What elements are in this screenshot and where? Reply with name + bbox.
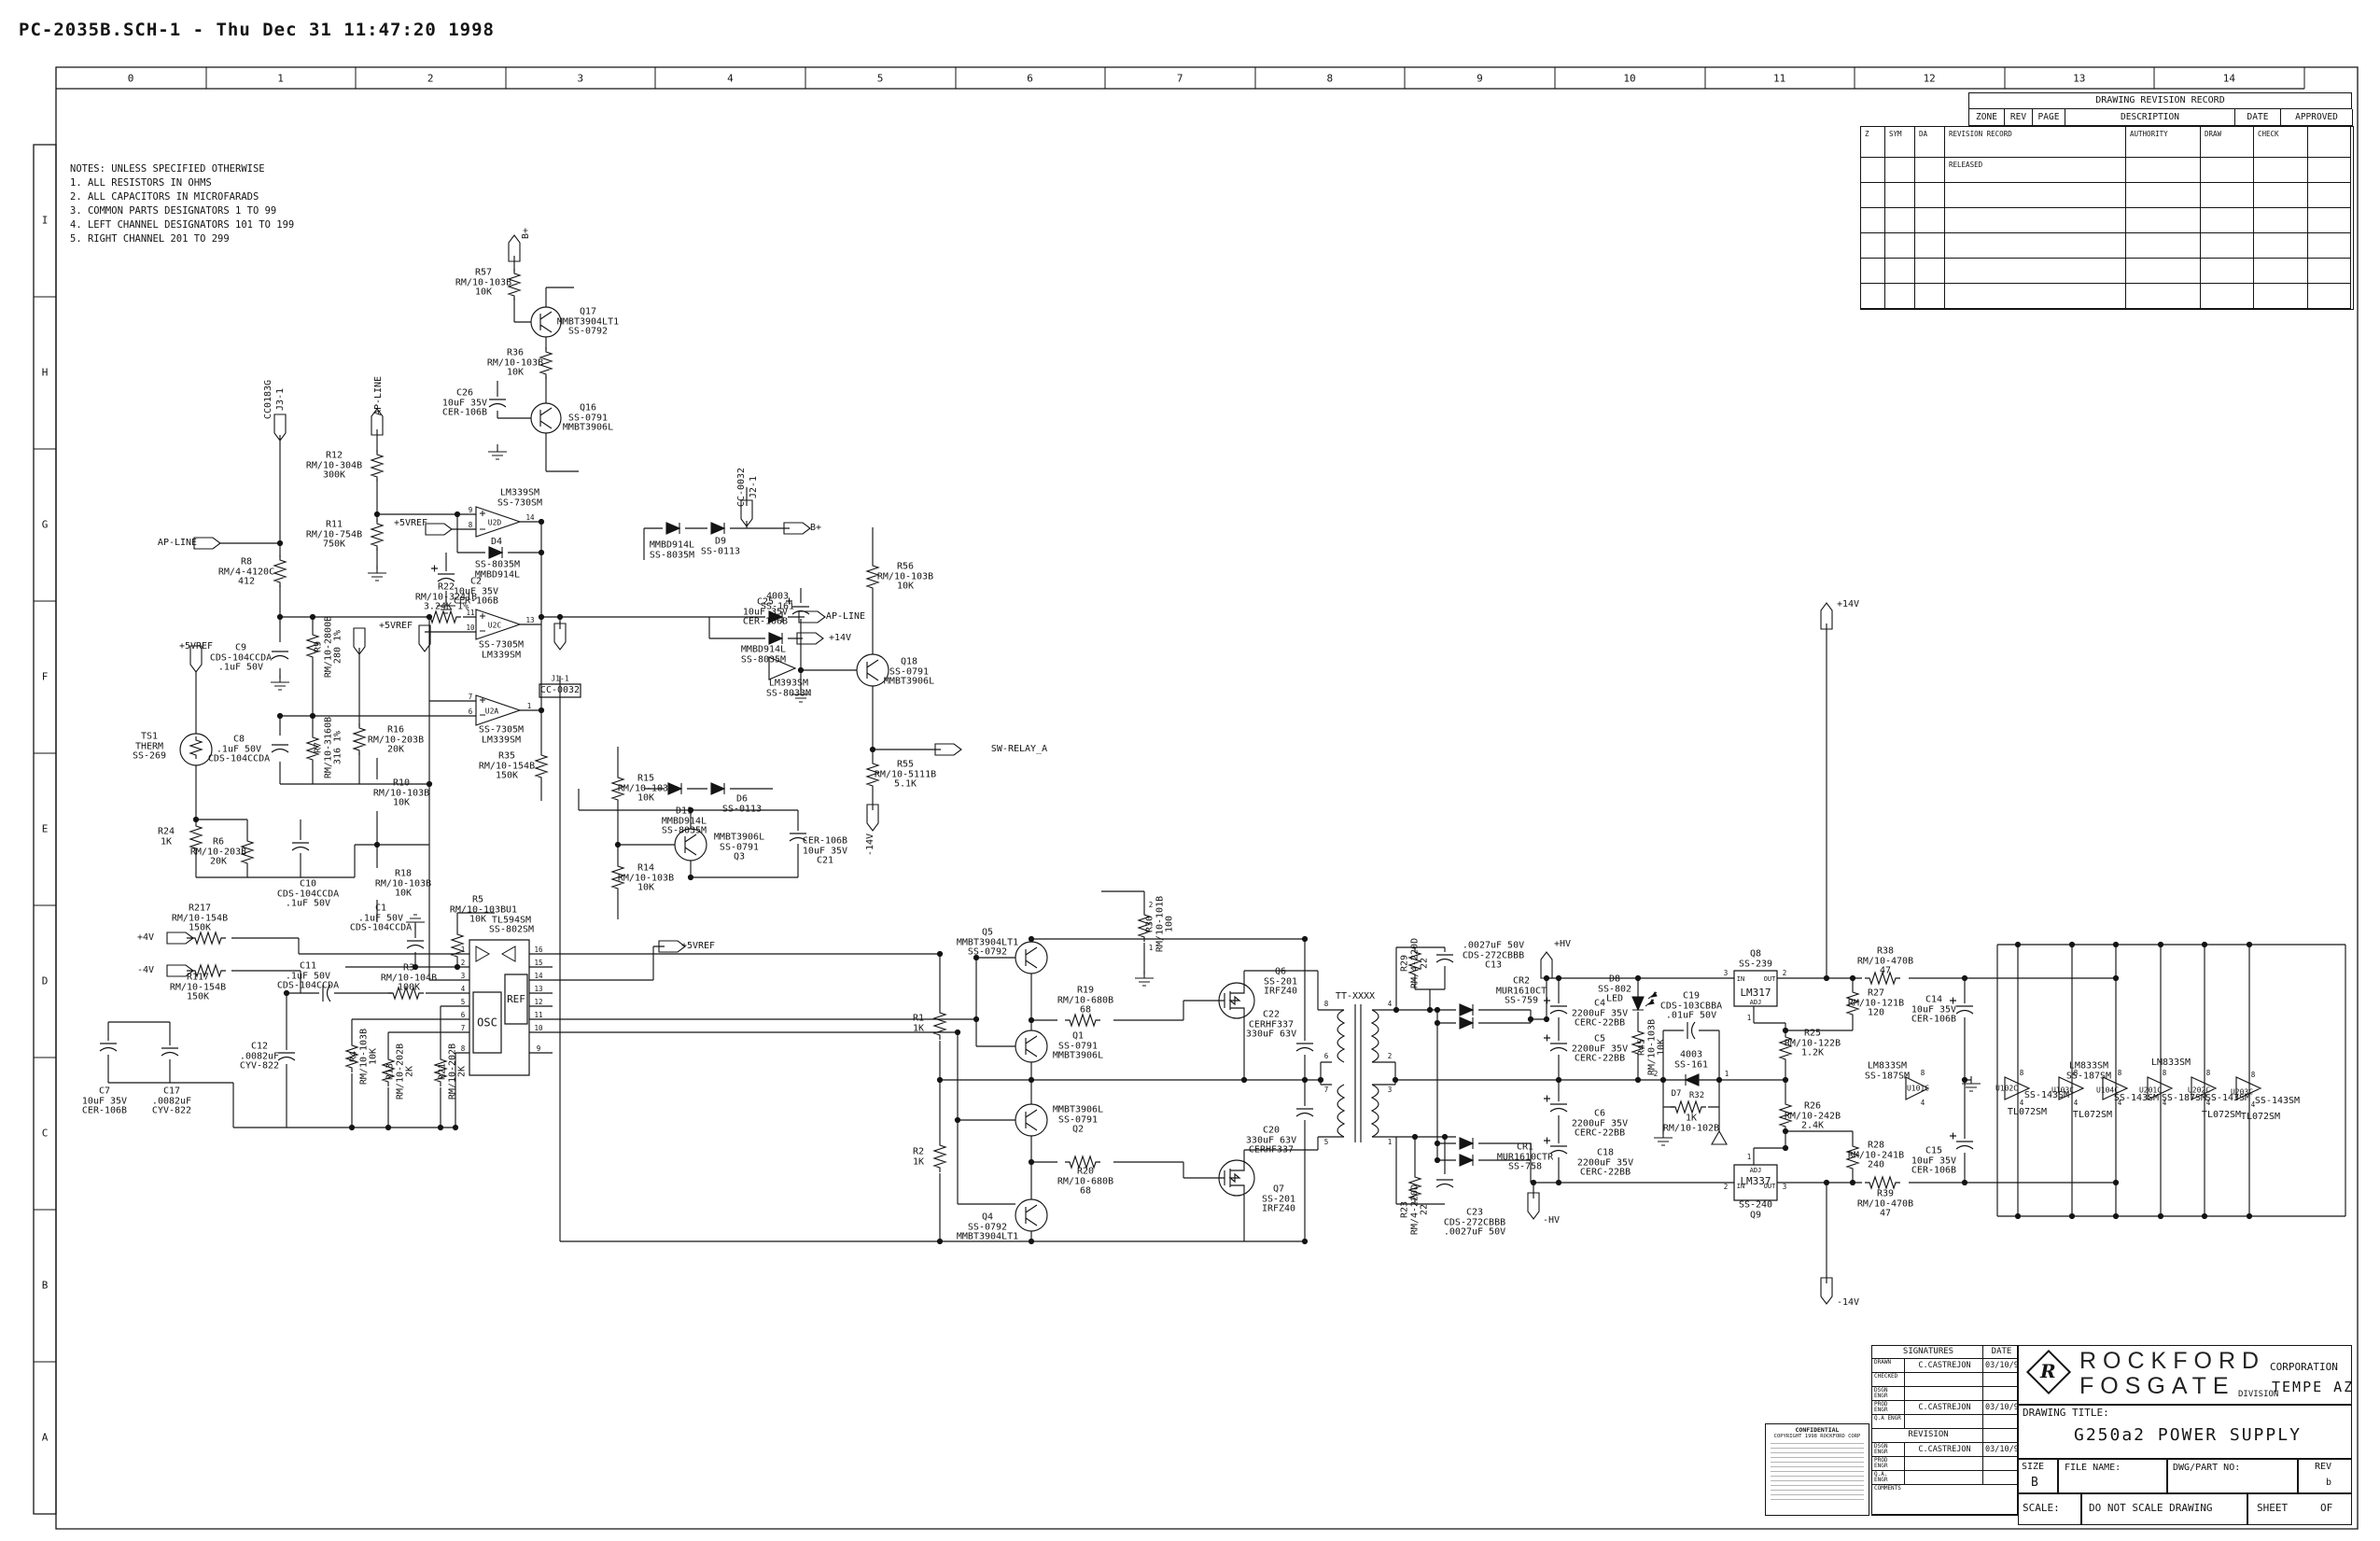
pin-number: 13 bbox=[534, 986, 542, 993]
border-column-0: 0 bbox=[128, 74, 134, 84]
confidential-box: CONFIDENTIAL COPYRIGHT 1998 ROCKFORD COR… bbox=[1765, 1423, 1869, 1516]
pin-number: 4 bbox=[2074, 1100, 2079, 1107]
schematic-label: -4V bbox=[137, 966, 154, 976]
rev-inner-col: DRAW bbox=[2201, 127, 2254, 158]
rev-cell bbox=[1945, 208, 2126, 233]
schematic-label: R28 RM/10-241B 240 bbox=[1848, 1141, 1904, 1170]
schematic-label: OUT bbox=[1764, 975, 1776, 983]
schematic-label: Q16 SS-0791 MMBT3906L bbox=[563, 403, 613, 433]
schematic-sheet: { "header": { "title": "PC-2035B.SCH-1 -… bbox=[0, 0, 2380, 1541]
size-value: B bbox=[2031, 1477, 2038, 1490]
sig-cell: DATE bbox=[1983, 1346, 2019, 1359]
sig-cell bbox=[1983, 1457, 2019, 1471]
schematic-label: R36 RM/10-103B 10K bbox=[487, 348, 543, 378]
schematic-label: R45 RM/10-103B 10K bbox=[1637, 1019, 1667, 1075]
pin-number: 8 bbox=[2163, 1070, 2167, 1077]
rev-cell bbox=[1945, 233, 2126, 259]
schematic-label: C22 CERHF337 330uF 63V bbox=[1246, 1010, 1296, 1040]
sig-cell: Q.A. ENGR bbox=[1872, 1471, 1905, 1485]
border-row-A: A bbox=[42, 1433, 49, 1443]
schematic-label: SS-143SM bbox=[2255, 1097, 2300, 1107]
sig-cell: SIGNATURES bbox=[1872, 1346, 1983, 1359]
pin-number: 9 bbox=[537, 1045, 541, 1053]
schematic-label: MMBT3906L SS-0791 Q3 bbox=[714, 833, 764, 862]
schematic-label: U2A bbox=[485, 707, 498, 716]
schematic-label: CER-106B 10uF 35V C21 bbox=[803, 836, 847, 866]
schematic-label: J3-1 bbox=[276, 388, 287, 411]
schematic-label: R12 RM/10-304B 300K bbox=[306, 451, 362, 481]
rev-cell bbox=[2254, 158, 2308, 183]
note-line: 4. LEFT CHANNEL DESIGNATORS 101 TO 199 bbox=[70, 220, 294, 231]
schematic-label: R2 1K bbox=[913, 1148, 924, 1168]
schematic-label: LM833SM bbox=[2151, 1058, 2191, 1069]
rev-inner-col: CHECK bbox=[2254, 127, 2308, 158]
pin-number: 8 bbox=[469, 522, 473, 529]
schematic-label: R4 RM/10-103B 10K bbox=[349, 1029, 379, 1085]
rev-value: b bbox=[2326, 1478, 2331, 1488]
confidential-legal-text bbox=[1771, 1443, 1864, 1501]
schematic-label: Q1 SS-0791 MMBT3906L bbox=[1053, 1031, 1103, 1061]
rev-cell bbox=[1885, 259, 1915, 284]
sig-cell: DSGN ENGR bbox=[1872, 1387, 1905, 1401]
schematic-label: C8 .1uF 50V CDS-104CCDA bbox=[208, 735, 270, 764]
schematic-label: D8 SS-802 LED bbox=[1598, 974, 1631, 1004]
pin-number: 13 bbox=[525, 617, 534, 624]
schematic-label: SW-RELAY_A bbox=[991, 745, 1047, 755]
pin-number: 6 bbox=[469, 708, 473, 716]
schematic-label: R3 RM/10-104B 100K bbox=[381, 963, 437, 993]
pin-number: 3 bbox=[461, 973, 466, 980]
schematic-label: MMBD914L SS-8035M bbox=[741, 646, 786, 665]
sig-cell: REVISION bbox=[1872, 1429, 1983, 1443]
schematic-label: 1K RM/10-102B bbox=[1663, 1114, 1719, 1134]
sig-cell: DSGN ENGR bbox=[1872, 1443, 1905, 1457]
rev-cell bbox=[1915, 233, 1945, 259]
rev-cell bbox=[2201, 259, 2254, 284]
pin-number: 11 bbox=[534, 1012, 542, 1019]
schematic-label: R7 RM/10-3160B 316 1% bbox=[314, 717, 343, 778]
pin-number: 8 bbox=[2074, 1070, 2079, 1077]
confidential-copyright: COPYRIGHT 1998 ROCKFORD CORP bbox=[1766, 1434, 1869, 1440]
schematic-label: C1 .1uF 50V CDS-104CCDA bbox=[350, 904, 412, 933]
schematic-label: C6 2200uF 35V CERC-22BB bbox=[1572, 1109, 1628, 1139]
schematic-label: R16 RM/10-203B 20K bbox=[368, 725, 424, 755]
schematic-label: R13 RM/10-202B 2K bbox=[385, 1044, 415, 1100]
rev-cell bbox=[2201, 183, 2254, 208]
pin-number: 1 bbox=[527, 703, 532, 710]
rev-cell bbox=[1861, 158, 1885, 183]
schematic-label: CC-0032 bbox=[737, 468, 748, 507]
border-column-11: 11 bbox=[1773, 74, 1785, 84]
rev-cell bbox=[2308, 284, 2351, 309]
sig-cell: PROD ENGR bbox=[1872, 1401, 1905, 1415]
sig-cell: 03/10/98 bbox=[1983, 1359, 2019, 1373]
schematic-label: C5 2200uF 35V CERC-22BB bbox=[1572, 1034, 1628, 1064]
schematic-label: U203C bbox=[2231, 1088, 2253, 1097]
schematic-label: R24 1K bbox=[158, 828, 175, 848]
sig-cell bbox=[1983, 1415, 2019, 1429]
schematic-label: R29 RM/4-220D 22 bbox=[1400, 938, 1430, 988]
schematic-label: R10 RM/10-103B 10K bbox=[373, 778, 429, 808]
schematic-label: -14V bbox=[1837, 1298, 1859, 1309]
schematic-label: TT-XXXX bbox=[1336, 992, 1375, 1002]
rev-col-APPROVED: APPROVED bbox=[2280, 109, 2353, 126]
sig-cell bbox=[1905, 1415, 1983, 1429]
sig-cell: C.CASTREJON bbox=[1905, 1443, 1983, 1457]
schematic-label: SS-187SM bbox=[2162, 1094, 2206, 1104]
schematic-label: Q5 MMBT3904LT1 SS-0792 bbox=[957, 928, 1018, 958]
schematic-label: R6 RM/10-203B 20K bbox=[190, 837, 246, 867]
schematic-label: LM393SM SS-8033M bbox=[766, 679, 811, 699]
pin-number: 8 bbox=[461, 1045, 466, 1053]
size-label: SIZE bbox=[2022, 1462, 2044, 1472]
schematic-label: R14 RM/10-103B 10K bbox=[618, 863, 674, 893]
schematic-label: U1 TL594SM SS-802SM bbox=[489, 905, 534, 935]
rev-cell bbox=[2254, 284, 2308, 309]
schematic-label: U2D bbox=[488, 519, 501, 527]
pin-number: 1 bbox=[1747, 1015, 1752, 1022]
sig-cell: C.CASTREJON bbox=[1905, 1401, 1983, 1415]
sig-cell: CHECKED bbox=[1872, 1373, 1905, 1387]
pin-number: 10 bbox=[466, 624, 474, 632]
schematic-label: +5VREF bbox=[379, 622, 413, 632]
border-row-H: H bbox=[42, 368, 49, 378]
schematic-label: TL072SM bbox=[2241, 1113, 2280, 1123]
schematic-label: C23 CDS-272CBBB .0027uF 50V bbox=[1444, 1208, 1505, 1238]
schematic-label: .0027uF 50V CDS-272CBBB C13 bbox=[1463, 941, 1524, 971]
rev-cell bbox=[1885, 284, 1915, 309]
file-name-label: FILE NAME: bbox=[2065, 1463, 2121, 1473]
rev-cell bbox=[2126, 208, 2201, 233]
rev-cell bbox=[1915, 259, 1945, 284]
rev-cell bbox=[1915, 158, 1945, 183]
pin-number: 9 bbox=[469, 507, 473, 514]
rev-cell bbox=[2126, 233, 2201, 259]
pin-number: 2 bbox=[1149, 902, 1154, 909]
schematic-label: C10 CDS-104CCDA .1uF 50V bbox=[277, 879, 339, 909]
rev-inner-col bbox=[2308, 127, 2351, 158]
rev-cell bbox=[2201, 284, 2254, 309]
schematic-label: R20 RM/10-680B 68 bbox=[1057, 1167, 1113, 1197]
rev-inner-col: DA bbox=[1915, 127, 1945, 158]
sig-cell: 03/10/98 bbox=[1983, 1443, 2019, 1457]
schematic-label: U101C bbox=[1907, 1085, 1929, 1093]
schematic-label: AP-LINE bbox=[158, 539, 197, 549]
rev-cell bbox=[1861, 284, 1885, 309]
sheet-label: SHEET bbox=[2257, 1503, 2288, 1514]
schematic-label: +5VREF bbox=[394, 519, 427, 529]
schematic-label: R8 RM/4-4120C 412 bbox=[218, 557, 274, 587]
rev-cell bbox=[1885, 183, 1915, 208]
drawing-title-label: DRAWING TITLE: bbox=[2023, 1408, 2109, 1419]
pin-number: 3 bbox=[1388, 1086, 1393, 1094]
rev-cell bbox=[2308, 259, 2351, 284]
schematic-label: CR1 MUR1610CTR SS-758 bbox=[1497, 1142, 1553, 1172]
rev-cell bbox=[1885, 233, 1915, 259]
schematic-label: LM833SM SS-187SM bbox=[1865, 1062, 1910, 1082]
schematic-label: SS-7305M LM339SM bbox=[479, 726, 524, 746]
revision-table-columns: ZONEREVPAGEDESCRIPTIONDATEAPPROVED bbox=[1968, 109, 2352, 126]
scale-label: SCALE: bbox=[2023, 1503, 2060, 1514]
pin-number: 1 bbox=[1149, 945, 1154, 952]
pin-number: 8 bbox=[2118, 1070, 2122, 1077]
border-column-6: 6 bbox=[1027, 74, 1033, 84]
rev-col-DESCRIPTION: DESCRIPTION bbox=[2065, 109, 2235, 126]
schematic-label: MMBD914L SS-8035M bbox=[650, 541, 694, 561]
pin-number: 7 bbox=[469, 693, 473, 701]
sig-cell bbox=[1983, 1387, 2019, 1401]
schematic-label: +14V bbox=[1837, 600, 1859, 610]
pin-number: 1 bbox=[461, 946, 466, 954]
pin-number: 15 bbox=[534, 960, 542, 967]
revision-table-grid: ZSYMDAREVISION RECORDAUTHORITYDRAWCHECKR… bbox=[1860, 126, 2354, 310]
border-column-3: 3 bbox=[577, 74, 583, 84]
rev-cell bbox=[2126, 259, 2201, 284]
border-column-9: 9 bbox=[1477, 74, 1483, 84]
scale-note: DO NOT SCALE DRAWING bbox=[2089, 1503, 2212, 1514]
schematic-label: C19 CDS-103CBBA .01uF 50V bbox=[1660, 991, 1722, 1021]
rev-col-DATE: DATE bbox=[2234, 109, 2281, 126]
pin-number: 4 bbox=[2163, 1100, 2167, 1107]
schematic-label: +5VREF bbox=[179, 642, 213, 652]
signatures-table: SIGNATURESDATEDRAWNC.CASTREJON03/10/98CH… bbox=[1871, 1345, 2018, 1516]
company-name-1: ROCKFORD bbox=[2079, 1349, 2265, 1373]
border-column-8: 8 bbox=[1326, 74, 1333, 84]
schematic-label: R19 RM/10-680B 68 bbox=[1057, 986, 1113, 1016]
confidential-title: CONFIDENTIAL bbox=[1766, 1426, 1869, 1434]
rev-cell bbox=[1915, 208, 1945, 233]
schematic-label: ADJ bbox=[1750, 999, 1762, 1006]
dwg-label: DWG/PART NO: bbox=[2173, 1463, 2240, 1473]
sig-cell bbox=[1905, 1373, 1983, 1387]
sig-cell: Q.A ENGR bbox=[1872, 1415, 1905, 1429]
schematic-label: IN bbox=[1737, 1183, 1744, 1190]
rev-cell bbox=[2308, 158, 2351, 183]
rev-cell bbox=[2254, 259, 2308, 284]
rev-cell bbox=[1885, 208, 1915, 233]
schematic-label: TL072SM bbox=[2073, 1111, 2112, 1121]
pin-number: 8 bbox=[2251, 1072, 2256, 1079]
border-column-7: 7 bbox=[1177, 74, 1183, 84]
schematic-label: CC0183G bbox=[264, 380, 274, 419]
pin-number: 7 bbox=[1324, 1086, 1329, 1094]
company-name-2: FOSGATE bbox=[2079, 1374, 2235, 1398]
border-row-G: G bbox=[42, 520, 49, 530]
schematic-label: R56 RM/10-103B 10K bbox=[877, 562, 933, 592]
schematic-label: C18 2200uF 35V CERC-22BB bbox=[1577, 1148, 1633, 1178]
rev-cell bbox=[1915, 284, 1945, 309]
pin-number: 4 bbox=[2251, 1101, 2256, 1109]
schematic-label: R9 RM/10-2800B 280 1% bbox=[314, 616, 343, 678]
schematic-label: B+ bbox=[522, 228, 532, 239]
pin-number: 4 bbox=[461, 986, 466, 993]
sig-cell: 03/10/98 bbox=[1983, 1401, 2019, 1415]
schematic-label: R55 RM/10-5111B 5.1K bbox=[875, 760, 936, 790]
sig-cell: COMMENTS bbox=[1872, 1485, 2019, 1515]
schematic-label: -HV bbox=[1543, 1216, 1560, 1226]
pin-number: 8 bbox=[2206, 1070, 2211, 1077]
schematic-label: R117 RM/10-154B 150K bbox=[170, 973, 226, 1002]
schematic-label: +4V bbox=[137, 933, 154, 944]
schematic-label: Q7 SS-201 IRFZ40 bbox=[1262, 1184, 1295, 1214]
border-column-14: 14 bbox=[2223, 74, 2235, 84]
pin-number: 5 bbox=[461, 999, 466, 1006]
rev-cell bbox=[2126, 158, 2201, 183]
schematic-label: R11 RM/10-754B 750K bbox=[306, 520, 362, 550]
rev-cell bbox=[2254, 208, 2308, 233]
drawing-revision-record: DRAWING REVISION RECORD ZONEREVPAGEDESCR… bbox=[1860, 92, 2352, 310]
sig-cell bbox=[1983, 1471, 2019, 1485]
pin-number: 16 bbox=[534, 946, 542, 954]
schematic-label: SS-240 Q9 bbox=[1739, 1201, 1772, 1221]
rev-cell bbox=[2254, 233, 2308, 259]
schematic-label: Q17 MMBT3904LT1 SS-0792 bbox=[557, 307, 619, 337]
border-column-5: 5 bbox=[877, 74, 884, 84]
rev-inner-col: AUTHORITY bbox=[2126, 127, 2201, 158]
schematic-label: TS1 THERM SS-269 bbox=[133, 732, 166, 762]
border-column-13: 13 bbox=[2073, 74, 2085, 84]
border-column-1: 1 bbox=[277, 74, 284, 84]
border-row-B: B bbox=[42, 1281, 49, 1291]
pin-number: 14 bbox=[525, 514, 534, 522]
border-column-2: 2 bbox=[427, 74, 434, 84]
schematic-label: C11 .1uF 50V CDS-104CCDA bbox=[277, 961, 339, 991]
schematic-label: MMBT3906L SS-0791 Q2 bbox=[1053, 1105, 1103, 1135]
rev-cell bbox=[1945, 183, 2126, 208]
pin-number: 7 bbox=[461, 1025, 466, 1032]
sig-cell bbox=[1983, 1373, 2019, 1387]
of-label: OF bbox=[2320, 1503, 2332, 1514]
schematic-label: R57 RM/10-103B 10K bbox=[455, 268, 511, 298]
pin-number: 5 bbox=[1324, 1139, 1329, 1146]
rev-cell bbox=[2126, 284, 2201, 309]
border-row-E: E bbox=[42, 824, 49, 834]
schematic-label: +HV bbox=[1554, 940, 1571, 950]
schematic-label: R18 RM/10-103B 10K bbox=[375, 869, 431, 899]
border-row-D: D bbox=[42, 976, 49, 987]
schematic-label: LM317 bbox=[1740, 988, 1771, 999]
schematic-label: R15 RM/10-103B 10K bbox=[618, 774, 674, 804]
schematic-label: B+ bbox=[810, 524, 821, 534]
rev-cell bbox=[1885, 158, 1915, 183]
pin-number: 3 bbox=[1783, 1184, 1787, 1191]
schematic-label: U201C bbox=[2139, 1086, 2162, 1095]
note-line: NOTES: UNLESS SPECIFIED OTHERWISE bbox=[70, 164, 265, 175]
pin-number: 6 bbox=[1324, 1053, 1329, 1060]
rev-col-PAGE: PAGE bbox=[2032, 109, 2065, 126]
rev-cell: RELEASED bbox=[1945, 158, 2126, 183]
rev-cell bbox=[1861, 183, 1885, 208]
schematic-label: C7 10uF 35V CER-106B bbox=[82, 1086, 127, 1116]
schematic-label: C26 10uF 35V CER-106B bbox=[442, 388, 487, 418]
schematic-label: AP-LINE bbox=[826, 612, 865, 623]
pin-number: 4 bbox=[1921, 1100, 1925, 1107]
rev-cell bbox=[1915, 183, 1945, 208]
schematic-label: C17 .0082uF CYV-822 bbox=[152, 1086, 191, 1116]
sig-cell bbox=[1983, 1429, 2019, 1443]
note-line: 3. COMMON PARTS DESIGNATORS 1 TO 99 bbox=[70, 206, 276, 217]
schematic-label: CR2 MUR1610CT SS-759 bbox=[1496, 976, 1547, 1006]
schematic-label: C12 .0082uF CYV-822 bbox=[240, 1042, 279, 1072]
schematic-label: Q4 SS-0792 MMBT3904LT1 bbox=[957, 1212, 1018, 1242]
revision-table-title: DRAWING REVISION RECORD bbox=[1968, 92, 2352, 109]
rev-cell bbox=[1861, 259, 1885, 284]
schematic-label: Q6 SS-201 IRFZ40 bbox=[1264, 967, 1297, 997]
rev-cell bbox=[2201, 208, 2254, 233]
rev-cell bbox=[2308, 233, 2351, 259]
rev-cell bbox=[1861, 208, 1885, 233]
schematic-label: J1-1 bbox=[551, 675, 568, 683]
border-row-F: F bbox=[42, 672, 49, 682]
sig-cell bbox=[1905, 1457, 1983, 1471]
rev-col-REV: REV bbox=[2004, 109, 2033, 126]
schematic-label: R38 RM/10-470B 47 bbox=[1857, 946, 1913, 976]
schematic-label: SS-7305M LM339SM bbox=[479, 641, 524, 661]
schematic-label: R23 RM/4-220D 22 bbox=[1400, 1184, 1430, 1235]
pin-number: 4 bbox=[2020, 1100, 2024, 1107]
drawing-title: G250a2 POWER SUPPLY bbox=[2074, 1426, 2302, 1445]
schematic-label: R39 RM/10-470B 47 bbox=[1857, 1189, 1913, 1219]
schematic-label: D4 bbox=[491, 538, 502, 548]
schematic-label: CC-0032 bbox=[540, 686, 580, 696]
pin-number: 2 bbox=[1783, 970, 1787, 977]
rev-cell bbox=[1945, 284, 2126, 309]
schematic-label: R32 bbox=[1689, 1091, 1704, 1100]
schematic-label: D9 SS-0113 bbox=[701, 538, 740, 557]
schematic-label: -14V bbox=[866, 834, 876, 856]
pin-number: 2 bbox=[461, 960, 466, 967]
rev-cell bbox=[2308, 208, 2351, 233]
schematic-label: C25 10uF 35V CER-106B bbox=[743, 597, 788, 627]
sig-cell: PROD ENGR bbox=[1872, 1457, 1905, 1471]
pin-number: 10 bbox=[534, 1025, 542, 1032]
schematic-label: TL072SM bbox=[2202, 1111, 2241, 1121]
border-column-10: 10 bbox=[1623, 74, 1635, 84]
schematic-label: TL072SM bbox=[2008, 1108, 2047, 1118]
rev-cell bbox=[2308, 183, 2351, 208]
pin-number: 8 bbox=[1324, 1001, 1329, 1008]
pin-number: 4 bbox=[2206, 1100, 2211, 1107]
schematic-label: R26 RM/10-242B 2.4K bbox=[1785, 1101, 1841, 1131]
schematic-label: ADJ bbox=[1750, 1167, 1762, 1174]
rev-cell bbox=[2201, 158, 2254, 183]
pin-number: 11 bbox=[466, 609, 474, 617]
pin-number: 1 bbox=[1388, 1139, 1393, 1146]
rev-inner-col: REVISION RECORD bbox=[1945, 127, 2126, 158]
pin-number: 2 bbox=[1724, 1184, 1729, 1191]
corporation-label: CORPORATION bbox=[2270, 1362, 2338, 1373]
schematic-label: R25 RM/10-122B 1.2K bbox=[1785, 1029, 1841, 1058]
schematic-label: LM339SM SS-730SM bbox=[497, 489, 542, 509]
pin-number: 6 bbox=[461, 1012, 466, 1019]
border-row-C: C bbox=[42, 1128, 49, 1139]
schematic-label: R217 RM/10-154B 150K bbox=[172, 904, 228, 933]
pin-number: 3 bbox=[1724, 970, 1729, 977]
schematic-label: J2-1 bbox=[749, 476, 760, 498]
schematic-label: 4003 SS-161 bbox=[1674, 1051, 1708, 1071]
schematic-label: AP-LINE bbox=[374, 376, 385, 415]
schematic-label: +5VREF bbox=[681, 942, 715, 952]
sig-cell: DRAWN bbox=[1872, 1359, 1905, 1373]
schematic-label: OSC bbox=[477, 1017, 497, 1030]
schematic-label: U103C bbox=[2051, 1086, 2074, 1095]
rev-inner-col: Z bbox=[1861, 127, 1885, 158]
schematic-label: U102C bbox=[1995, 1085, 2018, 1093]
note-line: 1. ALL RESISTORS IN OHMS bbox=[70, 178, 212, 189]
rev-cell bbox=[1861, 233, 1885, 259]
location-label: TEMPE AZ bbox=[2272, 1380, 2354, 1394]
pin-number: 1 bbox=[1747, 1154, 1752, 1161]
